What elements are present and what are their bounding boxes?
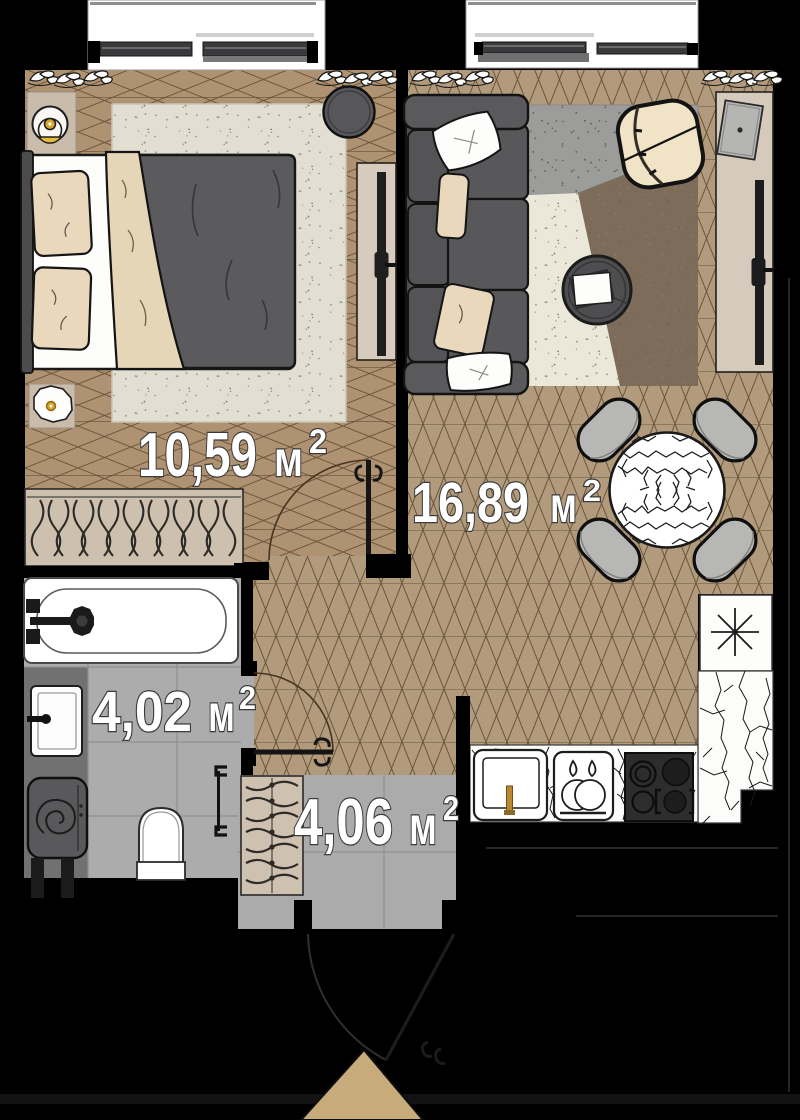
svg-text:10,59: 10,59 xyxy=(138,421,257,490)
svg-text:2: 2 xyxy=(443,790,459,828)
svg-text:16,89: 16,89 xyxy=(412,471,529,535)
svg-text:4,06: 4,06 xyxy=(294,785,393,858)
svg-text:м: м xyxy=(550,477,577,533)
svg-text:м: м xyxy=(274,431,303,487)
svg-text:2: 2 xyxy=(583,473,601,508)
svg-text:4,02: 4,02 xyxy=(92,680,192,744)
svg-text:м: м xyxy=(208,685,235,743)
svg-text:2: 2 xyxy=(239,680,256,716)
svg-text:2: 2 xyxy=(309,423,327,461)
svg-text:м: м xyxy=(409,796,437,856)
